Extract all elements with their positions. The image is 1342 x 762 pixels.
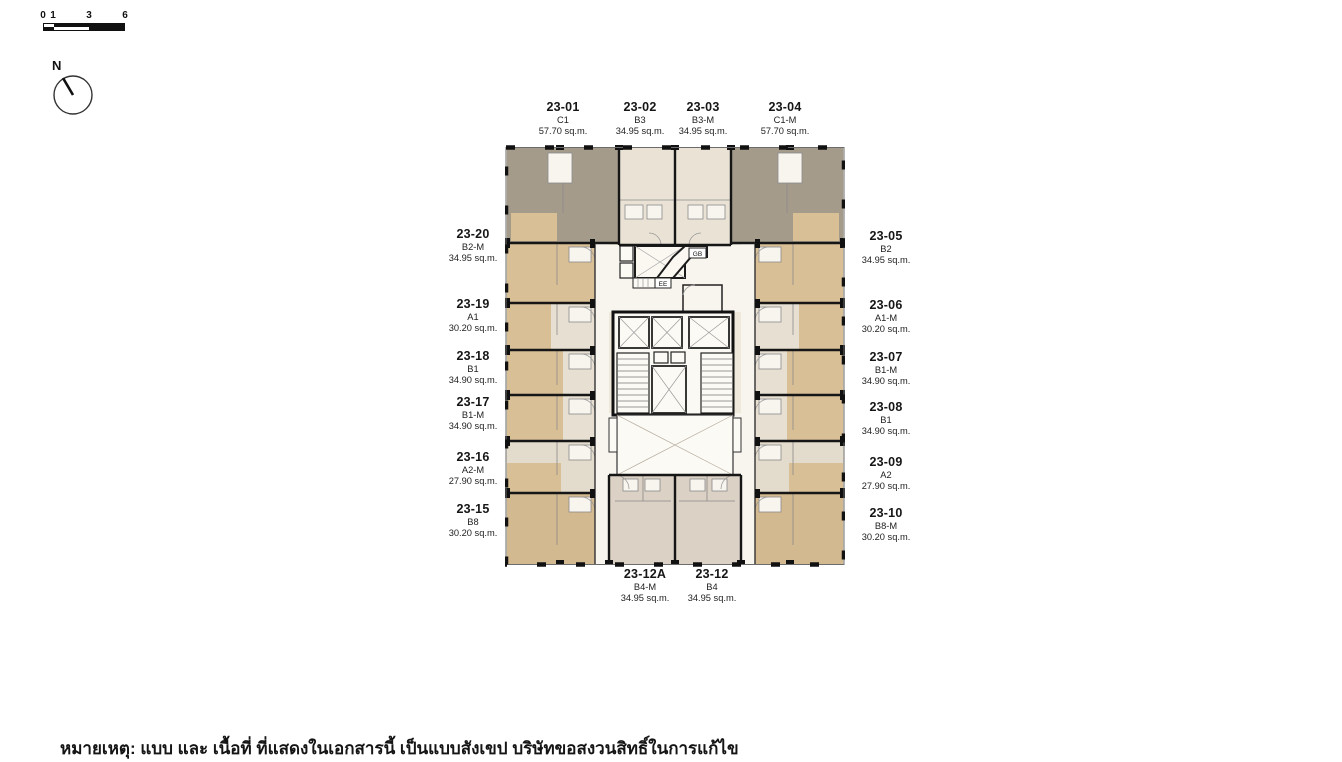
unit-label-23-03: 23-03 B3-M 34.95 sq.m.: [679, 101, 728, 137]
unit-label-23-12: 23-12 B4 34.95 sq.m.: [688, 568, 737, 604]
scale-segment: [54, 27, 89, 30]
unit-id: 23-16: [449, 451, 498, 464]
compass-icon: [49, 70, 97, 118]
unit-id: 23-17: [449, 396, 498, 409]
unit-type: B2-M: [449, 243, 498, 253]
scale-tick-label: 0: [40, 10, 46, 21]
unit-type: C1: [539, 116, 588, 126]
unit-area: 27.90 sq.m.: [862, 482, 911, 492]
unit-id: 23-18: [449, 350, 498, 363]
unit-label-23-06: 23-06 A1-M 30.20 sq.m.: [862, 299, 911, 335]
unit-type: B3-M: [679, 116, 728, 126]
unit-type: B1: [449, 365, 498, 375]
scale-tick-label: 3: [86, 10, 92, 21]
unit-area: 34.95 sq.m.: [449, 254, 498, 264]
unit-id: 23-04: [761, 101, 810, 114]
unit-type: A2: [862, 471, 911, 481]
unit-area: 57.70 sq.m.: [539, 127, 588, 137]
floor-plan: GB EE: [505, 145, 845, 567]
unit-area: 30.20 sq.m.: [449, 324, 498, 334]
unit-area: 30.20 sq.m.: [449, 529, 498, 539]
unit-type: A1: [449, 313, 498, 323]
unit-type: B2: [862, 245, 911, 255]
unit-type: B4: [688, 583, 737, 593]
unit-id: 23-12A: [621, 568, 670, 581]
unit-area: 57.70 sq.m.: [761, 127, 810, 137]
unit-area: 34.95 sq.m.: [688, 594, 737, 604]
unit-id: 23-01: [539, 101, 588, 114]
unit-type: B3: [616, 116, 665, 126]
unit-label-23-07: 23-07 B1-M 34.90 sq.m.: [862, 351, 911, 387]
unit-id: 23-05: [862, 230, 911, 243]
unit-area: 34.90 sq.m.: [862, 427, 911, 437]
unit-id: 23-20: [449, 228, 498, 241]
unit-id: 23-19: [449, 298, 498, 311]
unit-id: 23-10: [862, 507, 911, 520]
unit-area: 34.90 sq.m.: [862, 377, 911, 387]
unit-type: B1-M: [449, 411, 498, 421]
unit-id: 23-09: [862, 456, 911, 469]
unit-area: 34.95 sq.m.: [621, 594, 670, 604]
ee-label: EE: [659, 281, 668, 288]
unit-label-23-04: 23-04 C1-M 57.70 sq.m.: [761, 101, 810, 137]
unit-label-23-17: 23-17 B1-M 34.90 sq.m.: [449, 396, 498, 432]
scale-tick-label: 1: [50, 10, 56, 21]
unit-label-23-15: 23-15 B8 30.20 sq.m.: [449, 503, 498, 539]
unit-area: 30.20 sq.m.: [862, 325, 911, 335]
unit-area: 27.90 sq.m.: [449, 477, 498, 487]
unit-label-23-12A: 23-12A B4-M 34.95 sq.m.: [621, 568, 670, 604]
unit-id: 23-06: [862, 299, 911, 312]
unit-id: 23-07: [862, 351, 911, 364]
unit-id: 23-03: [679, 101, 728, 114]
scale-segment: [44, 27, 54, 30]
unit-area: 34.90 sq.m.: [449, 376, 498, 386]
disclaimer-note: หมายเหตุ: แบบ และ เนื้อที่ ที่แสดงในเอกส…: [60, 735, 739, 762]
unit-label-23-01: 23-01 C1 57.70 sq.m.: [539, 101, 588, 137]
unit-label-23-20: 23-20 B2-M 34.95 sq.m.: [449, 228, 498, 264]
floor-plan-drawing: GB EE: [505, 145, 845, 567]
unit-type: B1-M: [862, 366, 911, 376]
unit-label-23-10: 23-10 B8-M 30.20 sq.m.: [862, 507, 911, 543]
unit-label-23-19: 23-19 A1 30.20 sq.m.: [449, 298, 498, 334]
unit-label-23-02: 23-02 B3 34.95 sq.m.: [616, 101, 665, 137]
unit-area: 34.95 sq.m.: [616, 127, 665, 137]
gb-label: GB: [693, 251, 702, 258]
core: [613, 312, 733, 415]
north-arrow: N: [45, 58, 105, 120]
unit-type: C1-M: [761, 116, 810, 126]
unit-id: 23-02: [616, 101, 665, 114]
lobby: [609, 415, 741, 475]
scale-segment: [89, 27, 124, 30]
unit-label-23-08: 23-08 B1 34.90 sq.m.: [862, 401, 911, 437]
unit-label-23-18: 23-18 B1 34.90 sq.m.: [449, 350, 498, 386]
unit-id: 23-08: [862, 401, 911, 414]
unit-type: B4-M: [621, 583, 670, 593]
unit-label-23-05: 23-05 B2 34.95 sq.m.: [862, 230, 911, 266]
unit-area: 34.95 sq.m.: [862, 256, 911, 266]
scale-bar-graphic: [43, 23, 125, 31]
unit-type: A1-M: [862, 314, 911, 324]
unit-type: B8: [449, 518, 498, 528]
unit-type: B8-M: [862, 522, 911, 532]
scale-tick-label: 6: [122, 10, 128, 21]
unit-id: 23-15: [449, 503, 498, 516]
unit-area: 34.90 sq.m.: [449, 422, 498, 432]
unit-label-23-16: 23-16 A2-M 27.90 sq.m.: [449, 451, 498, 487]
unit-area: 34.95 sq.m.: [679, 127, 728, 137]
scale-bar: 0 1 3 6: [40, 10, 140, 34]
unit-label-23-09: 23-09 A2 27.90 sq.m.: [862, 456, 911, 492]
unit-type: A2-M: [449, 466, 498, 476]
unit-area: 30.20 sq.m.: [862, 533, 911, 543]
unit-id: 23-12: [688, 568, 737, 581]
unit-type: B1: [862, 416, 911, 426]
